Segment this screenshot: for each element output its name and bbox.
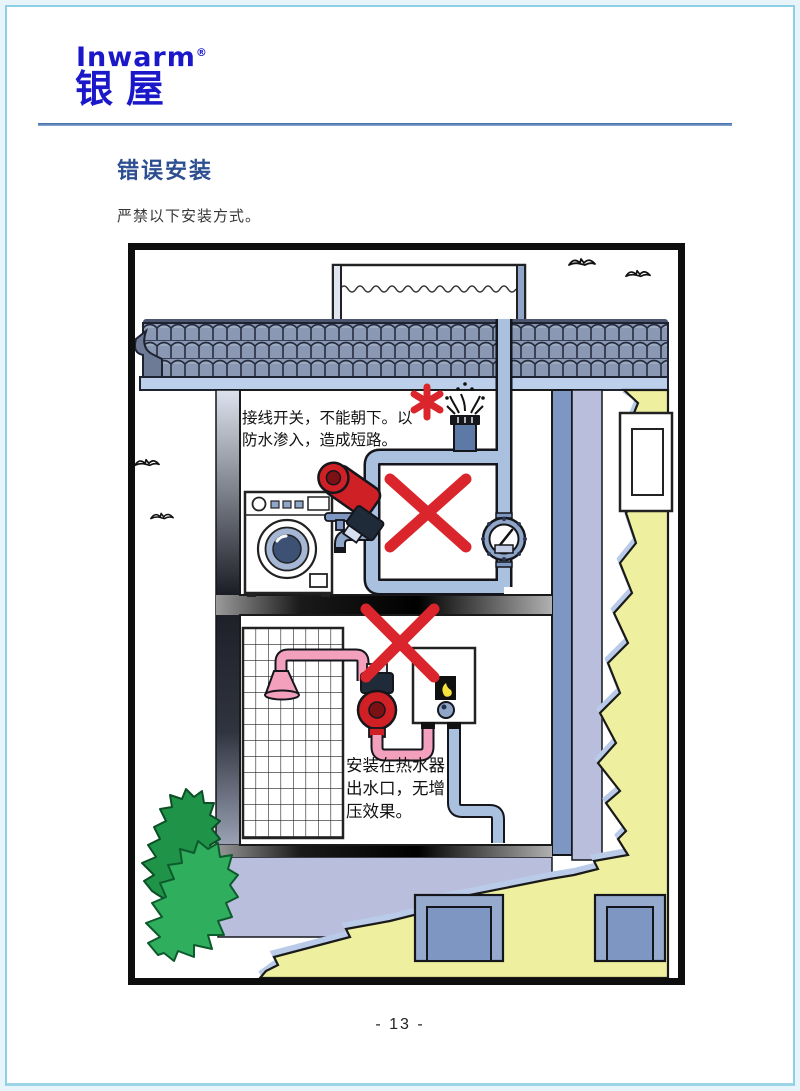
registered-trademark-icon: ® bbox=[196, 46, 208, 59]
svg-text:安装在热水器: 安装在热水器 bbox=[346, 756, 446, 775]
page-title: 错误安装 bbox=[117, 153, 213, 185]
svg-text:出水口，无增: 出水口，无增 bbox=[346, 779, 445, 798]
tiled-roof bbox=[135, 319, 668, 390]
upper-right-window bbox=[620, 413, 672, 511]
rooftop-water-tank bbox=[333, 265, 525, 322]
fascia-board bbox=[140, 377, 668, 390]
svg-text:防水渗入，造成短路。: 防水渗入，造成短路。 bbox=[242, 431, 397, 449]
cutaway-left-wall bbox=[216, 390, 240, 845]
brand-logo: Inwarm® bbox=[76, 44, 208, 71]
brand-logo-cjk: 银屋 bbox=[75, 70, 177, 112]
heater-knob bbox=[438, 702, 454, 718]
corner-column bbox=[552, 390, 572, 855]
bottom-window bbox=[415, 895, 503, 961]
inner-wall-lavender bbox=[572, 390, 602, 860]
washing-machine bbox=[245, 492, 332, 597]
intro-text: 严禁以下安装方式。 bbox=[117, 205, 261, 226]
manual-page: Inwarm® 银屋 错误安装 严禁以下安装方式。 bbox=[0, 0, 800, 1091]
ground-floor-slab-edge bbox=[216, 845, 552, 857]
svg-text:接线开关，不能朝下。以: 接线开关，不能朝下。以 bbox=[242, 409, 413, 427]
header-divider bbox=[38, 123, 732, 126]
bottom-window bbox=[595, 895, 665, 961]
wrong-installation-illustration: 接线开关，不能朝下。以 防水渗入，造成短路。 bbox=[128, 243, 685, 985]
floor-divider bbox=[216, 595, 552, 615]
page-number: - 13 - bbox=[0, 1016, 800, 1034]
svg-text:压效果。: 压效果。 bbox=[346, 802, 412, 821]
washer-dial bbox=[253, 498, 266, 511]
